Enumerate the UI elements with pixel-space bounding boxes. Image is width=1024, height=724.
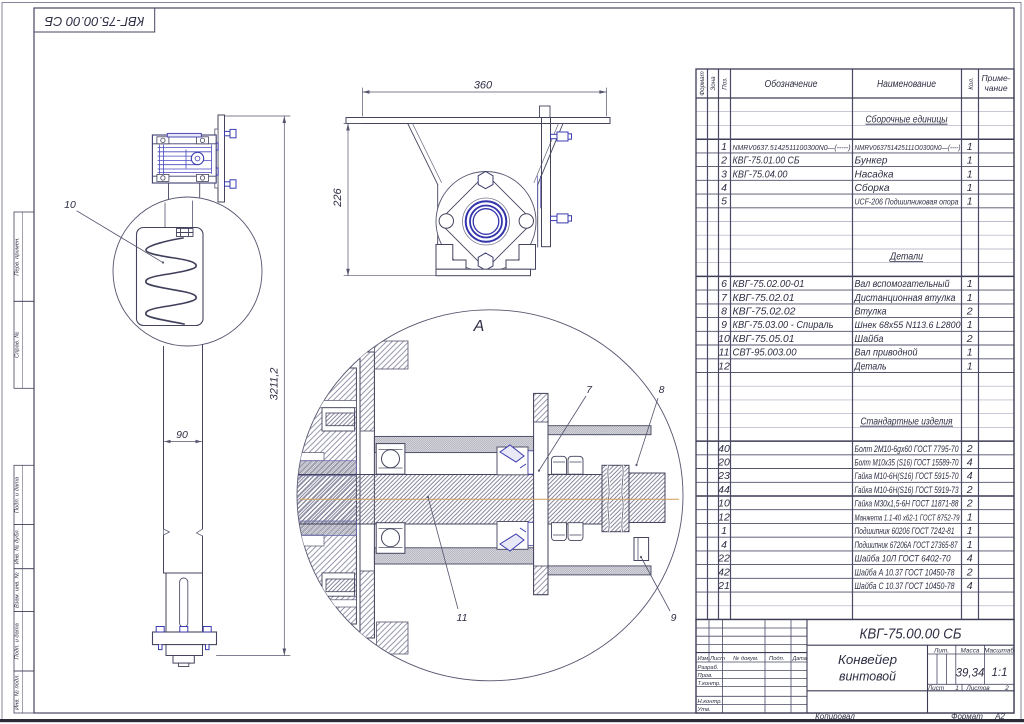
svg-text:9: 9 <box>721 319 727 331</box>
svg-text:1: 1 <box>721 141 727 153</box>
svg-text:21: 21 <box>717 580 730 592</box>
svg-text:1: 1 <box>967 360 973 372</box>
svg-text:11: 11 <box>719 347 730 359</box>
svg-text:23: 23 <box>717 470 730 482</box>
svg-text:8: 8 <box>721 306 727 318</box>
svg-text:КВГ-75.05.01: КВГ-75.05.01 <box>733 333 795 345</box>
svg-text:8: 8 <box>659 384 665 396</box>
svg-text:Разраб.: Разраб. <box>698 665 719 671</box>
svg-text:Инв. № дубл.: Инв. № дубл. <box>15 529 21 565</box>
svg-text:2: 2 <box>720 155 727 167</box>
svg-text:Подп. и дата: Подп. и дата <box>15 476 21 513</box>
svg-text:Дата: Дата <box>792 656 807 662</box>
svg-text:3211,2: 3211,2 <box>269 368 281 401</box>
svg-text:Наименование: Наименование <box>877 79 936 90</box>
svg-text:1: 1 <box>967 278 973 290</box>
svg-text:КВГ-75.01.00 СБ: КВГ-75.01.00 СБ <box>733 155 800 167</box>
svg-text:3: 3 <box>721 168 727 180</box>
svg-text:Насадка: Насадка <box>855 168 894 180</box>
svg-text:Изм.: Изм. <box>698 656 710 662</box>
svg-text:Сборка: Сборка <box>855 182 890 194</box>
svg-text:10: 10 <box>718 333 730 345</box>
svg-text:Лист: Лист <box>709 656 725 662</box>
svg-text:6: 6 <box>721 278 727 290</box>
svg-text:1: 1 <box>967 196 973 208</box>
svg-text:чание: чание <box>984 83 1008 93</box>
svg-text:10: 10 <box>718 498 730 510</box>
svg-text:А2: А2 <box>994 712 1005 721</box>
svg-text:1:1: 1:1 <box>992 667 1008 679</box>
svg-text:Манжета 1.1-40 х62-1 ГОСТ 8752: Манжета 1.1-40 х62-1 ГОСТ 8752-79 <box>855 512 960 522</box>
svg-text:1: 1 <box>721 525 727 537</box>
svg-text:2: 2 <box>966 306 973 318</box>
svg-text:Перв. примен.: Перв. примен. <box>15 237 21 276</box>
svg-text:Подп.: Подп. <box>769 656 784 662</box>
svg-text:Лит.: Лит. <box>933 647 949 654</box>
svg-text:4: 4 <box>967 457 973 469</box>
svg-text:Вал приводной: Вал приводной <box>855 347 918 359</box>
svg-text:9: 9 <box>671 612 677 624</box>
svg-text:UCF-206 Подшипниковая опора: UCF-206 Подшипниковая опора <box>855 197 959 207</box>
svg-text:Формат: Формат <box>699 71 706 96</box>
svg-text:1: 1 <box>967 525 973 537</box>
svg-text:Шнек 68х55 N113.6 L2800: Шнек 68х55 N113.6 L2800 <box>855 320 962 331</box>
svg-text:КВГ-75.04.00: КВГ-75.04.00 <box>733 168 788 180</box>
svg-text:4: 4 <box>721 539 727 551</box>
svg-text:1: 1 <box>967 511 973 523</box>
svg-text:Дистанционная втулка: Дистанционная втулка <box>854 293 956 304</box>
svg-text:NMRV063751425111O0300N0—(----): NMRV063751425111O0300N0—(----) <box>855 145 961 152</box>
svg-text:КВГ-75.03.00 - Спираль: КВГ-75.03.00 - Спираль <box>733 320 834 331</box>
svg-text:КВГ-75.02.00-01: КВГ-75.02.00-01 <box>733 278 805 290</box>
svg-text:1: 1 <box>967 168 973 180</box>
svg-text:Масштаб: Масштаб <box>984 646 1014 654</box>
svg-text:Инв. № подл.: Инв. № подл. <box>15 674 21 710</box>
svg-text:NMRV0637.5142511100300N0—(----: NMRV0637.5142511100300N0—(-----) <box>733 145 851 152</box>
svg-text:Зона: Зона <box>710 76 717 91</box>
svg-text:Лист: Лист <box>927 685 945 692</box>
svg-text:винтовой: винтовой <box>839 669 896 684</box>
svg-text:4: 4 <box>967 470 973 482</box>
svg-text:Масса: Масса <box>961 647 980 654</box>
svg-text:Болт М10х35 (S16) ГОСТ 15589-7: Болт М10х35 (S16) ГОСТ 15589-70 <box>855 458 959 468</box>
svg-text:39,34: 39,34 <box>956 668 985 680</box>
svg-text:1: 1 <box>967 155 973 167</box>
svg-text:Вал вспомогательный: Вал вспомогательный <box>855 279 950 290</box>
svg-text:СВТ-95.003.00: СВТ-95.003.00 <box>733 347 797 359</box>
svg-text:10: 10 <box>64 199 76 211</box>
svg-text:4: 4 <box>967 553 973 565</box>
svg-text:1: 1 <box>967 319 973 331</box>
svg-text:11: 11 <box>457 612 468 624</box>
svg-text:2: 2 <box>1004 685 1009 692</box>
svg-text:22: 22 <box>717 553 730 565</box>
svg-text:Поз.: Поз. <box>722 77 729 89</box>
svg-text:Шайба С 10.37 ГОСТ 10450-78: Шайба С 10.37 ГОСТ 10450-78 <box>855 581 955 591</box>
svg-text:№ докум.: № докум. <box>733 656 759 662</box>
svg-text:Справ. №: Справ. № <box>15 332 21 358</box>
svg-text:Болт 2М10-6gх60 ГОСТ 7795-70: Болт 2М10-6gх60 ГОСТ 7795-70 <box>855 444 959 454</box>
svg-text:360: 360 <box>474 80 493 92</box>
svg-text:Гайка М30х1,5-6Н ГОСТ 11871-88: Гайка М30х1,5-6Н ГОСТ 11871-88 <box>855 499 959 509</box>
svg-text:Деталь: Деталь <box>854 360 887 372</box>
svg-text:Стандартные изделия: Стандартные изделия <box>861 415 953 427</box>
svg-text:1: 1 <box>967 539 973 551</box>
svg-text:Детали: Детали <box>889 251 923 263</box>
svg-text:Взам. инв. №: Взам. инв. № <box>15 572 21 608</box>
svg-text:Конвейер: Конвейер <box>838 652 897 667</box>
svg-text:2: 2 <box>966 566 973 578</box>
svg-text:12: 12 <box>718 360 730 372</box>
svg-text:Шайба 10Л ГОСТ 6402-70: Шайба 10Л ГОСТ 6402-70 <box>855 554 952 565</box>
svg-text:Гайка М10-6Н(S16) ГОСТ 5919-7: Гайка М10-6Н(S16) ГОСТ 5919-73 <box>855 485 959 495</box>
svg-text:226: 226 <box>332 187 344 207</box>
svg-text:Пров.: Пров. <box>698 673 713 679</box>
svg-text:4: 4 <box>967 580 973 592</box>
svg-text:КВГ-75.02.02: КВГ-75.02.02 <box>733 306 796 318</box>
svg-text:44: 44 <box>718 484 730 496</box>
svg-text:Подшипник 67206А ГОСТ 27365-87: Подшипник 67206А ГОСТ 27365-87 <box>855 540 959 550</box>
svg-text:А: А <box>473 318 485 335</box>
svg-text:Приме-: Приме- <box>982 73 1011 83</box>
svg-text:Утв.: Утв. <box>697 707 711 713</box>
svg-text:Шайба А 10.37 ГОСТ 10450-78: Шайба А 10.37 ГОСТ 10450-78 <box>855 567 955 577</box>
svg-text:90: 90 <box>176 429 188 441</box>
svg-text:1: 1 <box>967 292 973 304</box>
svg-text:12: 12 <box>718 511 730 523</box>
svg-text:КВГ-75.00.00 СБ: КВГ-75.00.00 СБ <box>860 627 962 643</box>
svg-text:1: 1 <box>967 182 973 194</box>
svg-text:Втулка: Втулка <box>855 306 887 318</box>
svg-text:КВГ-75.00.00 СБ: КВГ-75.00.00 СБ <box>44 14 144 29</box>
svg-text:Шайба: Шайба <box>855 333 884 345</box>
svg-text:4: 4 <box>721 182 727 194</box>
svg-text:Кол.: Кол. <box>968 77 975 89</box>
svg-text:Подп. и дата: Подп. и дата <box>15 622 21 659</box>
svg-text:1: 1 <box>955 685 959 692</box>
svg-text:42: 42 <box>718 566 730 578</box>
svg-text:КВГ-75.02.01: КВГ-75.02.01 <box>733 292 795 304</box>
svg-text:2: 2 <box>966 498 973 510</box>
svg-text:Копировал: Копировал <box>815 712 855 721</box>
svg-text:40: 40 <box>718 443 730 455</box>
svg-text:Бункер: Бункер <box>855 155 888 167</box>
svg-text:2: 2 <box>966 484 973 496</box>
svg-text:Т.контр.: Т.контр. <box>698 681 721 687</box>
svg-text:2: 2 <box>966 443 973 455</box>
svg-text:Формат: Формат <box>951 712 983 721</box>
svg-text:Н.контр.: Н.контр. <box>698 699 723 705</box>
svg-text:20: 20 <box>717 457 730 469</box>
svg-text:Гайка М10-6Н(S16) ГОСТ 5915-70: Гайка М10-6Н(S16) ГОСТ 5915-70 <box>855 471 959 481</box>
svg-text:Обозначение: Обозначение <box>765 78 818 90</box>
svg-text:Подшипник 60206 ГОСТ 7242-81: Подшипник 60206 ГОСТ 7242-81 <box>855 526 955 536</box>
svg-text:5: 5 <box>721 196 727 208</box>
svg-text:1: 1 <box>967 141 973 153</box>
svg-text:Сборочные единицы: Сборочные единицы <box>866 113 948 125</box>
svg-text:Листов: Листов <box>965 685 990 692</box>
svg-text:1: 1 <box>967 347 973 359</box>
svg-text:2: 2 <box>966 333 973 345</box>
